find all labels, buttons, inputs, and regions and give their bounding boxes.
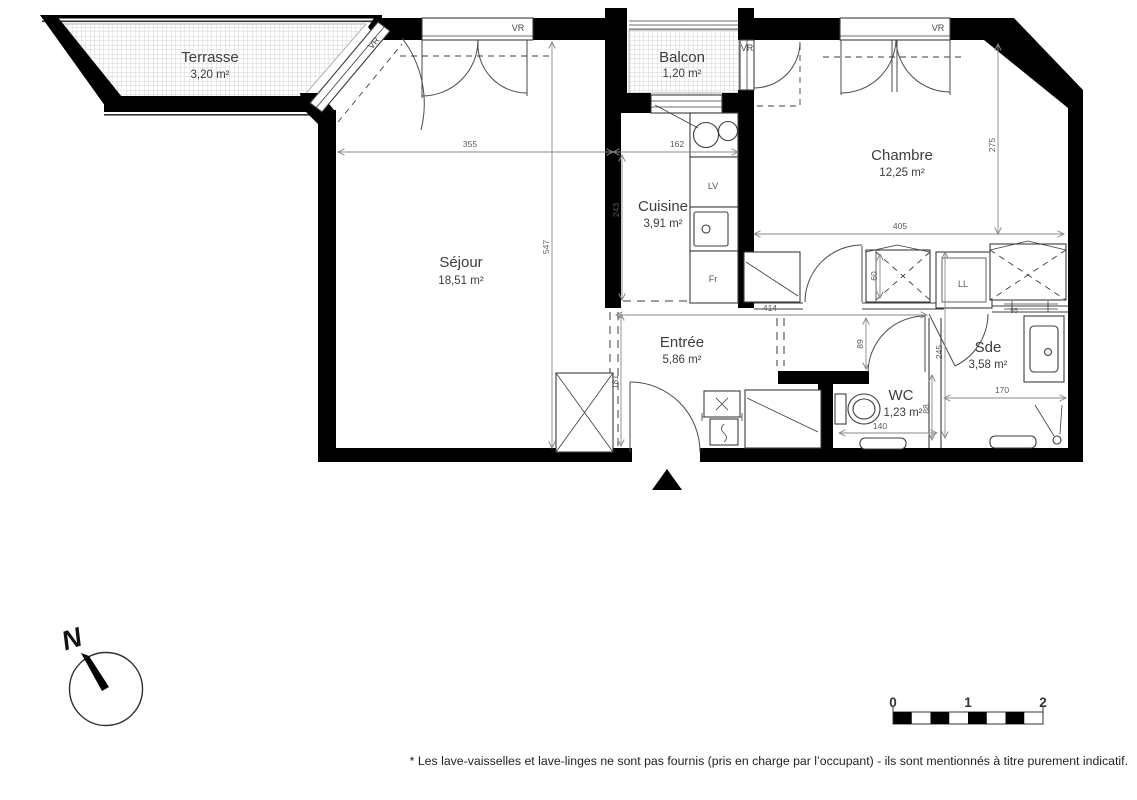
room-label-sejour: Séjour (439, 254, 482, 271)
room-area-sde: 3,58 m² (969, 359, 1008, 371)
dim-radiator: 55 (1010, 308, 1018, 315)
sejour-closet (556, 373, 613, 452)
sink-bowl-small-icon (719, 122, 738, 141)
wc-towel-radiator (860, 438, 906, 449)
dim-entree-width: 414 (763, 303, 777, 313)
scale-bar: 0 1 2 (889, 695, 1047, 724)
dim-sde-width: 170 (995, 385, 1009, 395)
room-area-sejour: 18,51 m² (438, 275, 484, 287)
hall-closet-lower (745, 390, 821, 448)
room-area-cuisine: 3,91 m² (644, 218, 683, 230)
sde-towel-radiator (990, 436, 1036, 448)
washbasin (1024, 316, 1064, 382)
sink-bowl-icon (694, 123, 719, 148)
dim-wc-width: 140 (873, 421, 887, 431)
north-label: N (58, 622, 86, 657)
toilet (835, 394, 880, 424)
room-label-balcon: Balcon (659, 49, 705, 66)
scale-tick-1: 1 (964, 695, 972, 710)
room-label-chambre: Chambre (871, 147, 933, 164)
compass-needle-icon (81, 653, 109, 691)
vr-label-balcon: VR (741, 43, 754, 53)
dim-entree-height: 181 (610, 375, 620, 389)
hall-closet-upper (744, 252, 800, 302)
washer-label: LL (958, 279, 968, 289)
fridge-label: Fr (709, 274, 718, 284)
faucet-icon (1045, 349, 1052, 356)
dim-chambre-height: 275 (987, 138, 997, 152)
washer-closet: LL (936, 252, 992, 308)
room-label-cuisine: Cuisine (638, 198, 688, 215)
entry-arrow-icon (652, 469, 682, 490)
oven-knob-icon (702, 225, 710, 233)
dim-cuisine-height: 243 (611, 203, 621, 217)
tech-closet (702, 391, 742, 445)
room-area-entree: 5,86 m² (663, 354, 702, 366)
room-area-terrasse: 3,20 m² (191, 69, 230, 81)
north-compass: N (58, 622, 143, 726)
dim-sde-height: 245 (934, 345, 944, 359)
wardrobe-right (990, 241, 1066, 312)
floor-plan-page: VR VR VR VR (0, 0, 1137, 800)
floor-plan-drawing: VR VR VR VR (0, 0, 1137, 800)
dim-chambre-width: 405 (893, 221, 907, 231)
room-label-wc: WC (889, 387, 914, 404)
room-area-chambre: 12,25 m² (879, 167, 925, 179)
dim-cuisine-width: 162 (670, 139, 684, 149)
dim-closet-depth: 60 (869, 271, 879, 281)
dim-hall-clearance: 89 (855, 339, 865, 349)
dim-sejour-height: 547 (541, 240, 551, 254)
vr-label-chambre: VR (932, 23, 945, 33)
room-label-terrasse: Terrasse (181, 49, 239, 66)
room-area-balcon: 1,20 m² (663, 68, 702, 80)
footnote-text: * Les lave-vaisselles et lave-linges ne … (410, 754, 1128, 768)
dim-sejour-width: 355 (463, 139, 477, 149)
shower-drain (1035, 405, 1062, 444)
dim-wc-height: 88 (921, 404, 931, 414)
room-label-sde: Sde (975, 339, 1002, 356)
vr-label-sejour: VR (512, 23, 525, 33)
dishwasher-label: LV (708, 181, 718, 191)
room-area-wc: 1,23 m² (884, 407, 923, 419)
compass-circle-icon (70, 653, 143, 726)
room-label-entree: Entrée (660, 334, 704, 351)
